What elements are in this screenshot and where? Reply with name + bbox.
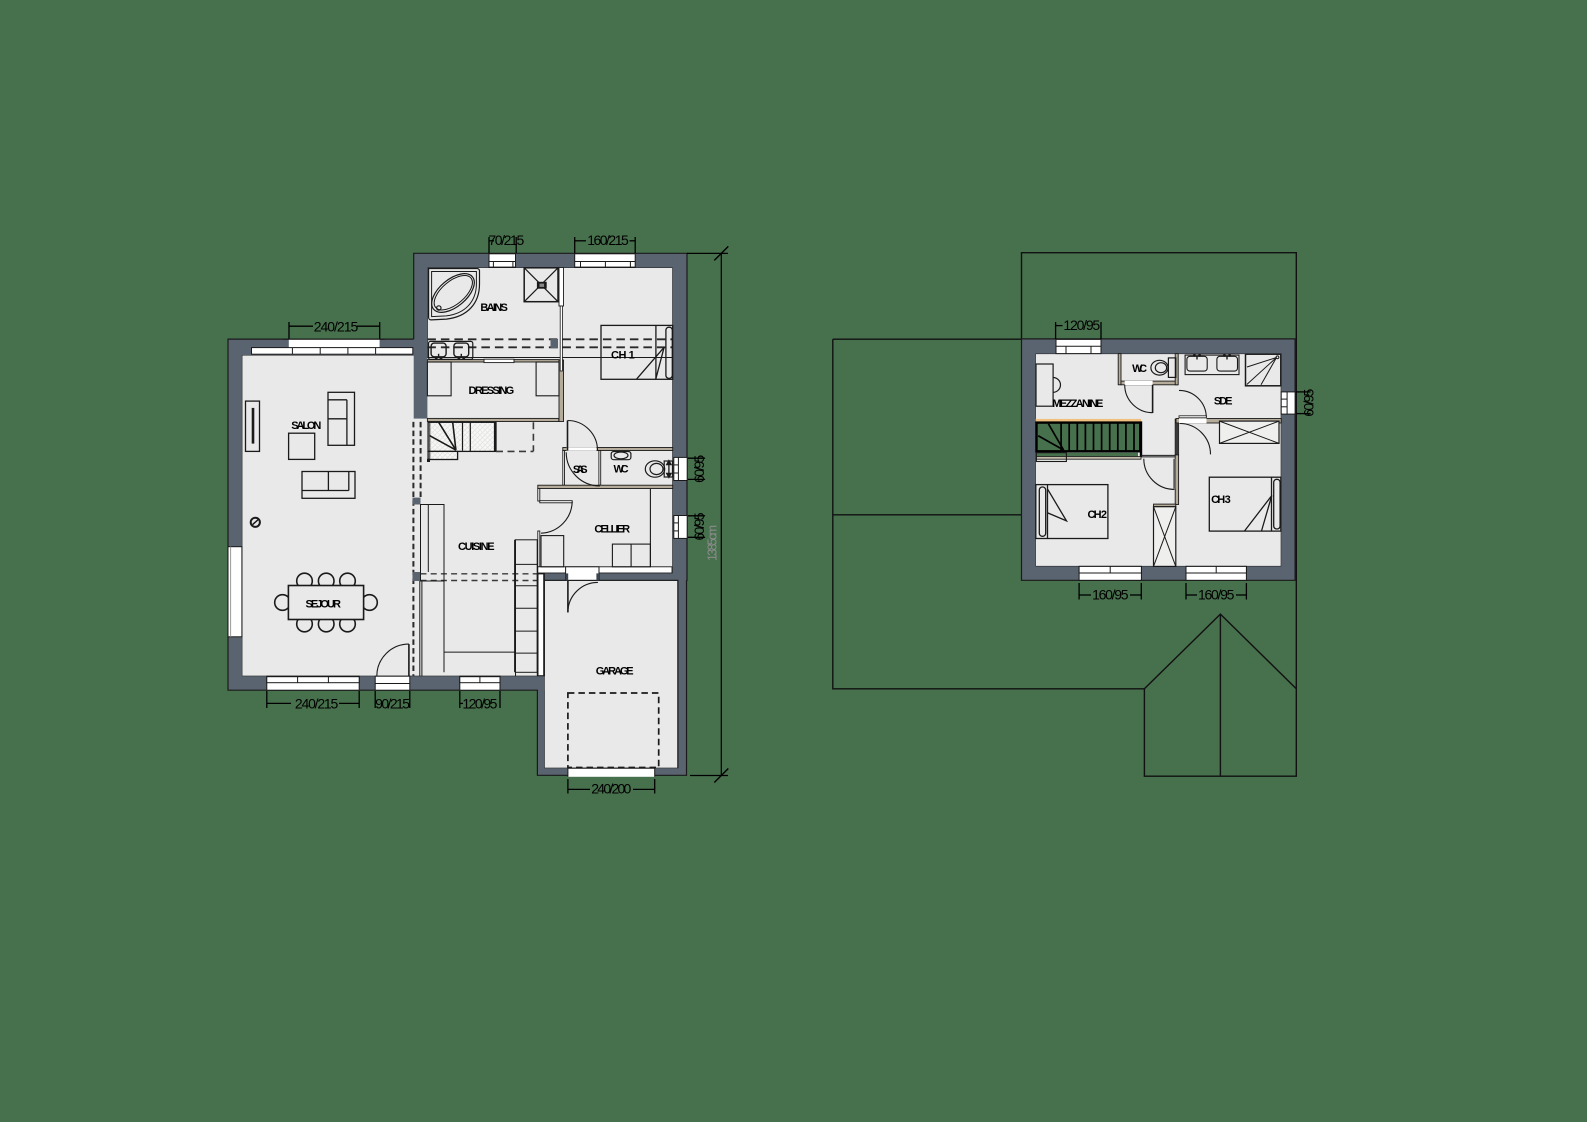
svg-text:MEZZANINE: MEZZANINE xyxy=(1052,398,1103,410)
svg-text:120/95: 120/95 xyxy=(1063,317,1100,333)
svg-text:SDE: SDE xyxy=(1214,395,1233,407)
svg-text:GARAGE: GARAGE xyxy=(596,666,634,678)
svg-text:160/95: 160/95 xyxy=(1092,586,1129,602)
svg-text:60/95: 60/95 xyxy=(1301,388,1317,416)
svg-text:240/200: 240/200 xyxy=(591,781,631,797)
svg-text:240/215: 240/215 xyxy=(314,319,359,335)
svg-text:SEJOUR: SEJOUR xyxy=(305,598,341,610)
svg-text:WC: WC xyxy=(1132,363,1147,375)
svg-text:CH 1: CH 1 xyxy=(611,349,635,361)
svg-text:DRESSING: DRESSING xyxy=(469,385,515,397)
svg-text:160/95: 160/95 xyxy=(1198,586,1235,602)
svg-text:90/215: 90/215 xyxy=(375,695,410,711)
svg-text:CH 3: CH 3 xyxy=(1211,494,1231,506)
svg-text:CELLIER: CELLIER xyxy=(594,523,630,535)
svg-text:BAINS: BAINS xyxy=(480,302,507,314)
svg-text:CUISINE: CUISINE xyxy=(458,541,495,553)
svg-text:WC: WC xyxy=(613,464,628,476)
svg-text:1385cm: 1385cm xyxy=(706,525,720,561)
svg-text:SAS: SAS xyxy=(573,464,588,476)
svg-text:160/215: 160/215 xyxy=(587,232,629,248)
svg-text:60/95: 60/95 xyxy=(691,455,707,483)
svg-text:70/215: 70/215 xyxy=(488,232,524,248)
svg-text:120/95: 120/95 xyxy=(462,695,497,711)
svg-text:CH 2: CH 2 xyxy=(1088,509,1108,521)
svg-text:SALON: SALON xyxy=(291,420,321,432)
svg-text:240/215: 240/215 xyxy=(295,695,339,711)
